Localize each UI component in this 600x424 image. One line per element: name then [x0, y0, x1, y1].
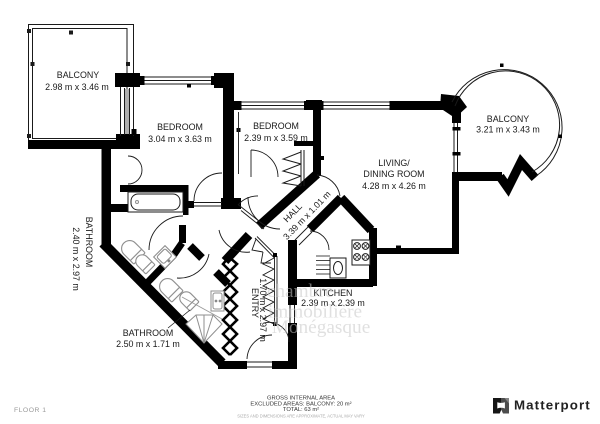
svg-text:DINING ROOM: DINING ROOM — [363, 169, 424, 179]
svg-text:3.04 m x 3.63 m: 3.04 m x 3.63 m — [148, 134, 212, 144]
svg-text:LIVING/: LIVING/ — [378, 158, 410, 168]
svg-text:2.40 m x 2.97 m: 2.40 m x 2.97 m — [71, 227, 81, 291]
svg-text:4.28 m x 4.26 m: 4.28 m x 4.26 m — [362, 181, 426, 191]
svg-text:SIZES AND DIMENSIONS ARE APPRO: SIZES AND DIMENSIONS ARE APPROXIMATE, AC… — [237, 414, 365, 419]
svg-text:2.98 m x 3.46 m: 2.98 m x 3.46 m — [45, 82, 109, 92]
svg-text:chambre: chambre — [267, 281, 333, 302]
svg-text:BEDROOM: BEDROOM — [253, 121, 299, 131]
svg-text:Matterport: Matterport — [514, 397, 591, 412]
svg-text:BALCONY: BALCONY — [57, 70, 99, 80]
svg-text:3.21 m x 3.43 m: 3.21 m x 3.43 m — [476, 125, 540, 135]
svg-text:Monégasque: Monégasque — [272, 317, 371, 338]
svg-text:FLOOR 1: FLOOR 1 — [14, 407, 47, 414]
svg-text:2.50 m x 1.71 m: 2.50 m x 1.71 m — [116, 339, 180, 349]
svg-text:BATHROOM: BATHROOM — [84, 217, 94, 268]
svg-text:2.39 m x 3.59 m: 2.39 m x 3.59 m — [244, 133, 308, 143]
svg-text:BATHROOM: BATHROOM — [123, 328, 174, 338]
svg-text:BALCONY: BALCONY — [487, 114, 529, 124]
svg-text:BEDROOM: BEDROOM — [157, 122, 203, 132]
svg-text:TOTAL: 63 m²: TOTAL: 63 m² — [283, 407, 319, 413]
